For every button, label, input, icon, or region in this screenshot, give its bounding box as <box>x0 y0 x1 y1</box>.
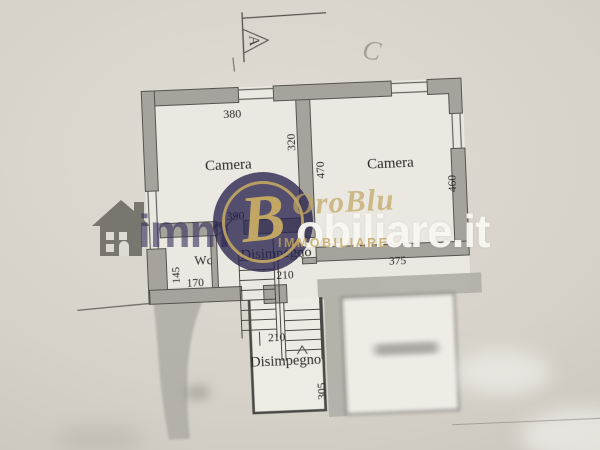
watermark: imm B obiliare.it OroBlu IMMOBILIARE <box>0 0 600 450</box>
floor-plan-photo: Camera Camera Wc Disimpegno Disimpegno 3… <box>0 0 600 450</box>
watermark-brand-caps: IMMOBILIARE <box>278 236 390 250</box>
watermark-brand-script: OroBlu <box>291 181 395 222</box>
